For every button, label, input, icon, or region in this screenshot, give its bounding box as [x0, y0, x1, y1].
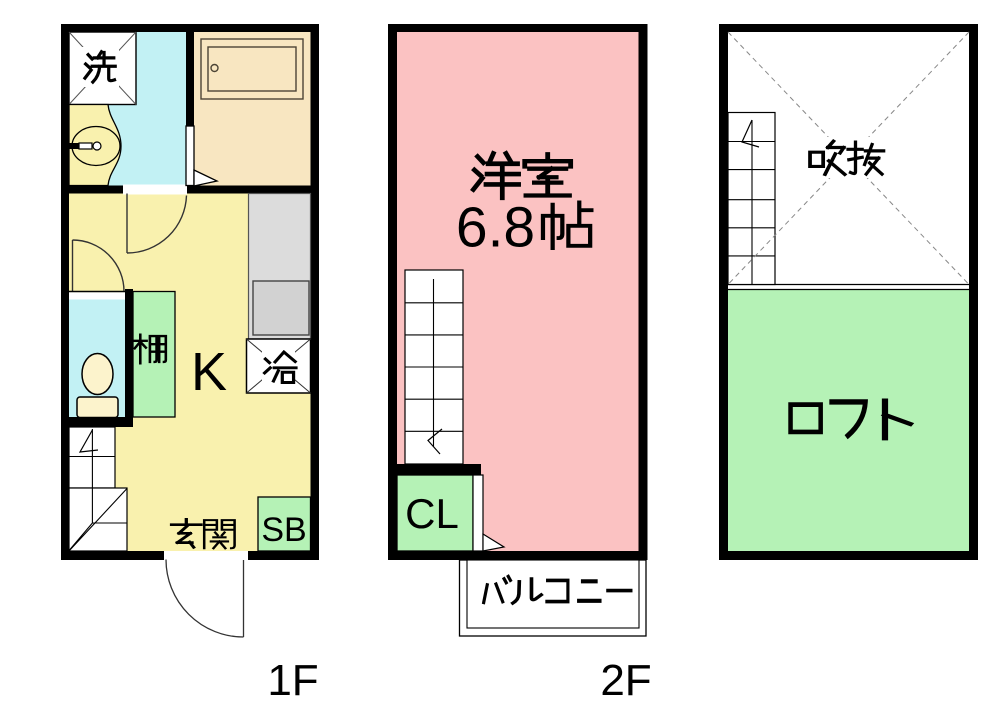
svg-text:2F: 2F [600, 656, 651, 705]
svg-text:SB: SB [261, 511, 306, 549]
svg-text:CL: CL [405, 490, 459, 537]
svg-text:6.8: 6.8 [456, 196, 535, 260]
svg-text:K: K [191, 342, 227, 402]
svg-text:1F: 1F [267, 656, 318, 705]
